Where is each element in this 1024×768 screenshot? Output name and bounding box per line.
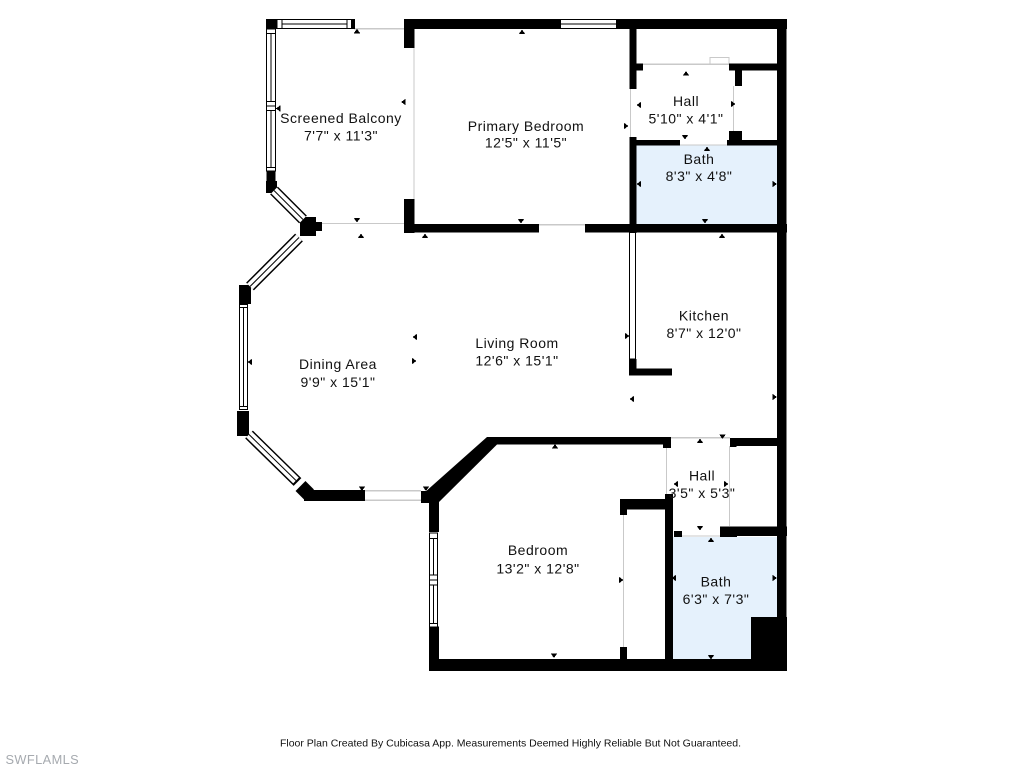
svg-text:3'5" x 5'3": 3'5" x 5'3" [669,485,736,501]
svg-text:SWFLAMLS: SWFLAMLS [6,752,80,767]
svg-text:Bath: Bath [684,151,715,167]
svg-text:8'3" x 4'8": 8'3" x 4'8" [666,168,733,184]
svg-text:5'10" x 4'1": 5'10" x 4'1" [649,111,724,127]
svg-text:7'7" x 11'3": 7'7" x 11'3" [304,128,378,144]
svg-text:13'2" x 12'8": 13'2" x 12'8" [496,561,579,577]
svg-text:8'7" x 12'0": 8'7" x 12'0" [667,325,742,341]
svg-text:Bedroom: Bedroom [508,542,568,558]
svg-text:6'3" x 7'3": 6'3" x 7'3" [683,591,750,607]
svg-text:Screened Balcony: Screened Balcony [280,110,402,126]
svg-text:Hall: Hall [689,468,715,484]
svg-text:12'5" x 11'5": 12'5" x 11'5" [485,135,567,151]
svg-text:Hall: Hall [673,93,699,109]
svg-text:Living Room: Living Room [475,335,558,351]
svg-text:9'9" x 15'1": 9'9" x 15'1" [301,374,376,390]
svg-text:Bath: Bath [701,574,732,590]
svg-text:Floor Plan Created By Cubicasa: Floor Plan Created By Cubicasa App. Meas… [280,738,741,750]
svg-text:Dining Area: Dining Area [299,356,377,372]
svg-text:12'6" x 15'1": 12'6" x 15'1" [475,353,558,369]
svg-text:Kitchen: Kitchen [679,308,729,324]
svg-text:Primary Bedroom: Primary Bedroom [468,118,584,134]
